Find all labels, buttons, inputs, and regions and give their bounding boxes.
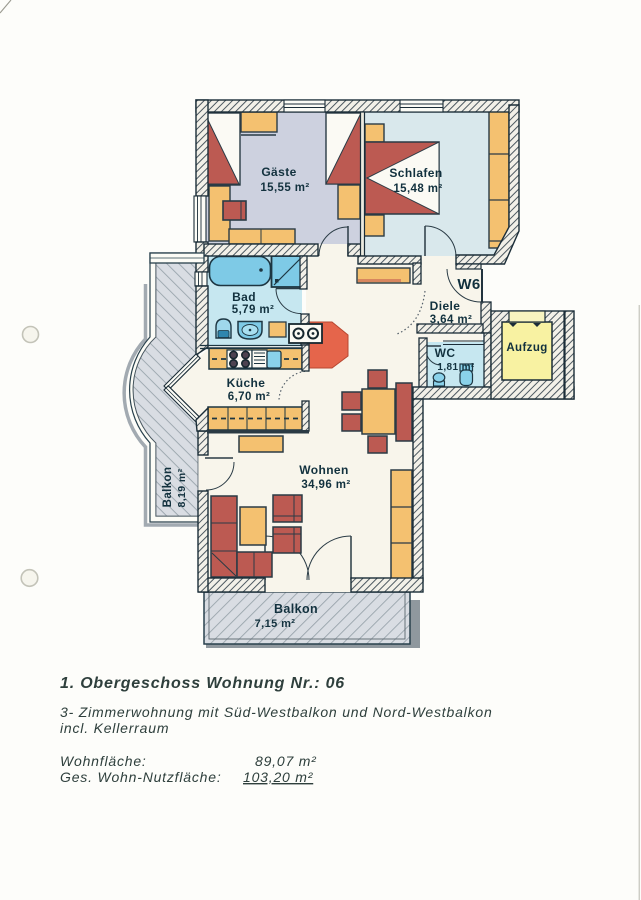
svg-text:Gäste: Gäste xyxy=(261,165,296,179)
svg-text:Wohnfläche:: Wohnfläche: xyxy=(60,753,147,769)
svg-text:6,70 m²: 6,70 m² xyxy=(228,391,270,403)
svg-text:Diele: Diele xyxy=(430,299,461,313)
svg-text:incl. Kellerraum: incl. Kellerraum xyxy=(60,720,169,736)
svg-text:89,07 m²: 89,07 m² xyxy=(255,753,317,769)
svg-text:15,48 m²: 15,48 m² xyxy=(393,183,442,195)
svg-text:1. Obergeschoss Wohnung Nr.: 0: 1. Obergeschoss Wohnung Nr.: 06 xyxy=(60,675,345,692)
svg-text:Schlafen: Schlafen xyxy=(389,166,442,180)
svg-text:5,79 m²: 5,79 m² xyxy=(232,304,274,316)
svg-text:Wohnen: Wohnen xyxy=(299,463,349,477)
svg-text:34,96 m²: 34,96 m² xyxy=(301,479,350,491)
svg-text:WC: WC xyxy=(435,346,456,360)
svg-text:3- Zimmerwohnung mit Süd-Westb: 3- Zimmerwohnung mit Süd-Westbalkon und … xyxy=(60,704,493,720)
svg-text:1,81 m²: 1,81 m² xyxy=(437,362,475,373)
svg-text:103,20 m²: 103,20 m² xyxy=(243,769,314,785)
svg-text:Aufzug: Aufzug xyxy=(506,342,547,354)
svg-text:W6: W6 xyxy=(457,276,480,293)
svg-text:Küche: Küche xyxy=(227,376,266,390)
svg-text:15,55 m²: 15,55 m² xyxy=(260,182,309,194)
svg-text:Balkon: Balkon xyxy=(274,602,318,616)
svg-text:Ges. Wohn-Nutzfläche:: Ges. Wohn-Nutzfläche: xyxy=(60,769,222,785)
svg-text:Bad: Bad xyxy=(232,290,256,304)
svg-text:3,64 m²: 3,64 m² xyxy=(430,314,472,326)
svg-text:8,19 m²: 8,19 m² xyxy=(176,468,188,507)
svg-text:7,15 m²: 7,15 m² xyxy=(255,618,296,630)
svg-text:Balkon: Balkon xyxy=(162,467,174,508)
